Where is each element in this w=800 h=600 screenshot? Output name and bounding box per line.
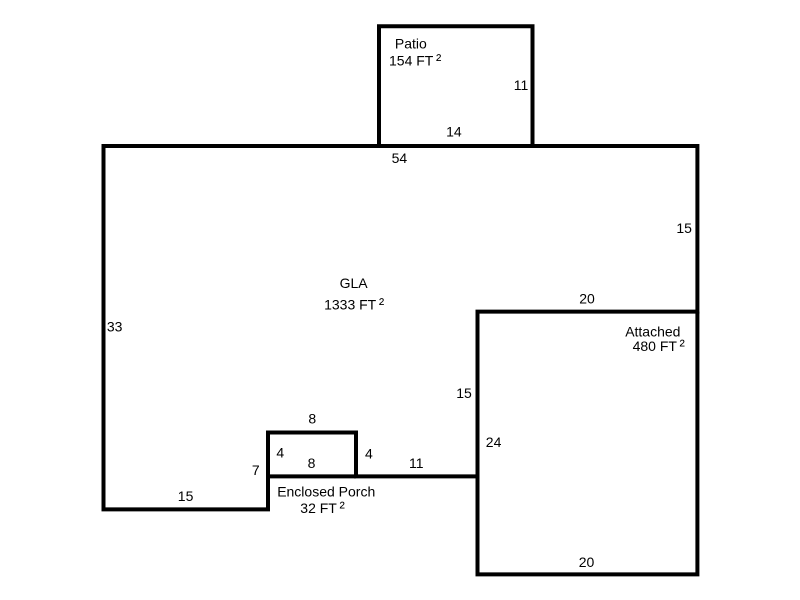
svg-text:8: 8 bbox=[308, 411, 316, 427]
svg-text:4: 4 bbox=[365, 446, 373, 462]
svg-text:20: 20 bbox=[579, 554, 595, 570]
svg-text:15: 15 bbox=[178, 488, 194, 504]
svg-text:Enclosed Porch: Enclosed Porch bbox=[277, 483, 375, 499]
svg-text:GLA: GLA bbox=[340, 275, 369, 291]
svg-text:Attached: Attached bbox=[625, 324, 680, 340]
svg-text:54: 54 bbox=[392, 150, 408, 166]
svg-text:11: 11 bbox=[409, 455, 424, 471]
svg-text:24: 24 bbox=[486, 434, 502, 450]
svg-text:Patio: Patio bbox=[395, 35, 427, 51]
svg-text:14: 14 bbox=[446, 123, 462, 139]
svg-text:1333 FT²: 1333 FT² bbox=[324, 297, 385, 314]
svg-text:7: 7 bbox=[252, 462, 260, 478]
svg-text:33: 33 bbox=[107, 319, 123, 335]
svg-text:11: 11 bbox=[514, 77, 529, 93]
svg-text:20: 20 bbox=[579, 290, 595, 306]
svg-text:15: 15 bbox=[676, 220, 692, 236]
svg-text:8: 8 bbox=[308, 455, 316, 471]
svg-text:15: 15 bbox=[456, 385, 472, 401]
svg-text:4: 4 bbox=[276, 445, 284, 461]
svg-text:32 FT²: 32 FT² bbox=[300, 500, 345, 517]
